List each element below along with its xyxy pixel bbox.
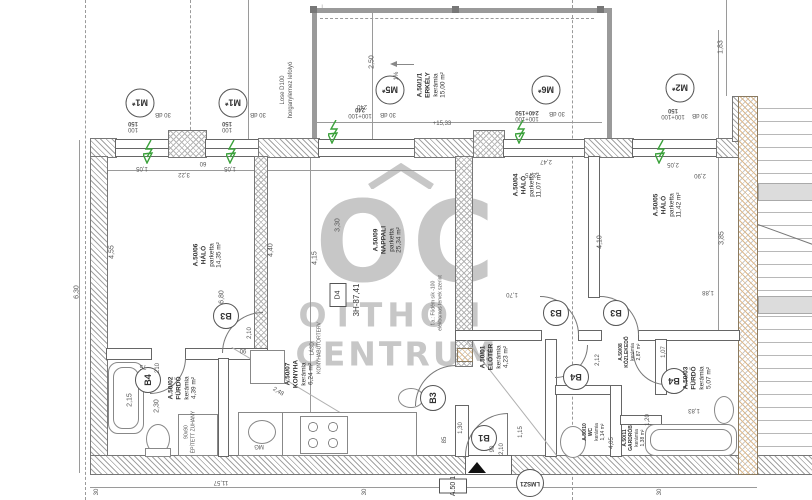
stair-strip [757, 96, 812, 455]
bathtub-2-inner [650, 429, 732, 451]
window-dims-m1-left: 100150 [128, 120, 138, 132]
wall-pillar [168, 130, 207, 158]
dim-label: 75 [140, 363, 147, 369]
wall-exterior-right [738, 96, 758, 475]
window-dims-m2: 100+100150 [661, 107, 685, 119]
dim-line [79, 140, 80, 473]
door-leaf [507, 413, 508, 455]
floor-plan-canvas: OC OTTHON CENTRUM ↓ [0, 0, 812, 500]
window-tag-m1-right: M1* [219, 89, 248, 118]
window-tag-m2: M2* [666, 74, 695, 103]
slope-label: 1% [394, 72, 400, 81]
door-tag-b3: B3 [543, 300, 569, 326]
dim-label: 1,20 [645, 414, 651, 426]
dim-label: 6,30 [74, 285, 81, 299]
tag-label: B1 [478, 433, 490, 443]
vent-arrow-icon [226, 140, 240, 164]
entrance-label-box: A.50 1 [439, 479, 467, 494]
room-area: 1,38 m² [640, 425, 646, 451]
room-id: A.50/01 [479, 344, 487, 370]
washer-label: MG [254, 443, 264, 449]
dim-label: 1,88 [702, 289, 714, 295]
room-id: A.50/09 [372, 226, 380, 254]
balcony-post [597, 6, 604, 13]
dim-label: 2,48 [271, 386, 284, 397]
room-finish: kerámia [432, 72, 440, 98]
room-name: NAPPALI [380, 226, 388, 254]
room-name: HÁLÓ [200, 242, 208, 268]
stair-step [758, 183, 812, 201]
wall-exterior [258, 138, 320, 158]
downpipe-note: Lose D100horganylemez lefolyó [280, 62, 296, 119]
dim-label: 150 [128, 120, 138, 126]
tag-label: B3 [610, 308, 622, 318]
dim-line [718, 30, 719, 330]
dim-line [106, 170, 455, 171]
dim-label: 2,10 [499, 443, 505, 455]
dim-label: 240+150 [515, 109, 539, 115]
dim-label: 90 [490, 446, 496, 453]
dim-label: 90 [240, 347, 247, 353]
room-id: A.50/02 [167, 376, 175, 399]
dim-label: 60 [200, 160, 207, 166]
wall-exterior-bottom [90, 455, 467, 475]
acoustic-label: 30 dB [380, 111, 396, 117]
balcony-post [452, 6, 459, 13]
note-line: horganylemez lefolyó [288, 62, 294, 119]
room-id: A.50/06 [192, 242, 200, 268]
note-line: elektromos tervek szerint [437, 275, 443, 331]
wall-interior [588, 156, 600, 298]
window-dims-m1-right: 100150 [222, 120, 232, 132]
door-tag-b4: B4 [563, 364, 589, 390]
room-finish: parketta [208, 242, 216, 268]
acoustic-label: 30 dB [549, 110, 565, 116]
wall-interior [578, 330, 602, 341]
wall-exterior [584, 138, 634, 158]
note-line: LÁSD: [310, 341, 316, 355]
dim-label: 2,75 [525, 171, 537, 177]
room-label-gardrob: A.50/11 GARDRÓB kerámia 1,38 m² [622, 425, 646, 451]
window-tag-m5: M5* [376, 76, 405, 105]
dim-label: 30 [657, 489, 663, 496]
wall-interior [455, 330, 542, 341]
room-name: KONYHA [292, 360, 300, 388]
tag-label: M2* [672, 83, 688, 93]
room-label-erkely: A.50/1/1 ERKÉLY kerámia 15,00 m² [416, 72, 447, 98]
room-finish: parketta [388, 226, 396, 254]
dim-label: 6,80 [219, 290, 226, 304]
dim-label: 4,40 [268, 243, 275, 257]
dim-label: 3,22 [178, 171, 190, 177]
room-area: 5,07 m² [706, 366, 714, 389]
bathtub-2 [645, 424, 737, 456]
dim-label: 4,55 [109, 245, 116, 259]
room-label-eloter: A.50/01 ELŐTÉR kerámia 4,23 m² [479, 344, 510, 370]
shower-label: 90x90ÉPÍTETT ZUHANY [184, 411, 197, 453]
wall-exterior [90, 138, 117, 158]
room-id: A.50/03 [682, 366, 690, 389]
room-finish: kerámia [183, 376, 191, 399]
tag-label: LMSZ1 [520, 480, 540, 486]
axis-line [85, 0, 86, 500]
room-area: 15,00 m² [440, 72, 448, 98]
room-label-halo1: A.50/06 HÁLÓ parketta 14,35 m² [192, 242, 223, 268]
balcony-post [310, 6, 317, 13]
dim-label: 4,15 [312, 251, 319, 265]
tag-label: B4 [668, 376, 680, 386]
room-name: HÁLÓ [660, 192, 668, 217]
dim-label: 1,83 [718, 40, 725, 54]
unit-type-box: D4 [330, 283, 347, 307]
axis-line [190, 0, 191, 140]
tag-label: M5* [382, 85, 398, 95]
tag-label: B4 [570, 372, 582, 382]
room-finish: parketta [668, 192, 676, 217]
tag-label: M6* [538, 85, 554, 95]
dim-label: 3,85 [719, 231, 726, 245]
insulation-marker [457, 348, 473, 362]
slope-arrow-head [390, 61, 397, 67]
door-tag-b3: B3 [420, 385, 446, 411]
dim-label: 1,05 [224, 165, 236, 171]
dim-label: 1,70 [506, 291, 518, 297]
dim-label: 1,07 [661, 346, 667, 358]
tag-label: B3 [550, 308, 562, 318]
dim-label: 11,57 [214, 479, 229, 485]
room-label-wc: A.50/10 WC kerámia 1,14 m² [582, 423, 606, 441]
slope-arrow-line [396, 64, 414, 65]
washbasin [714, 396, 734, 424]
dim-label: 2,12 [595, 354, 601, 366]
note-line: KONYHABÚTORTERV [316, 322, 322, 374]
vent-arrow-icon [515, 120, 529, 144]
acoustic-label: 30 dB [250, 111, 266, 117]
room-id: A.50/04 [512, 172, 520, 197]
room-name: ERKÉLY [424, 72, 432, 98]
room-label-nappali: A.50/09 NAPPALI parketta 25,34 m² [372, 226, 403, 254]
note-line: Lose D100 [280, 75, 286, 104]
balcony-outline [312, 8, 612, 148]
dim-label: 1,05 [136, 165, 148, 171]
dim-label: 85 [442, 437, 448, 444]
room-id: A.50/1/1 [416, 72, 424, 98]
unit-type-label: D4 [335, 291, 342, 300]
dim-label: 30 [94, 489, 100, 496]
kitchen-note: LÁSD:KONYHABÚTORTERV [310, 322, 323, 374]
dim-label: 240 [357, 103, 367, 109]
dim-label: 2,15 [127, 393, 134, 407]
unit-code-label: 3H-87,41 [353, 284, 361, 317]
room-area: 25,34 m² [396, 226, 404, 254]
room-name: FÜRDŐ [690, 366, 698, 389]
wall-interior [106, 348, 152, 360]
room-id: A.50/07 [284, 360, 292, 388]
vent-arrow-icon [655, 140, 669, 164]
wall-interior [638, 330, 740, 341]
door-tag-b3: B3 [213, 303, 239, 329]
room-label-furdo1: A.50/02 FÜRDŐ kerámia 4,39 m² [167, 376, 198, 399]
dim-label: 100 [222, 126, 232, 132]
dim-label: 150 [668, 107, 678, 113]
tag-label: M1* [132, 98, 148, 108]
room-name: FÜRDŐ [175, 376, 183, 399]
room-label-halo3: A.50/05 HÁLÓ parketta 11,42 m² [652, 192, 683, 217]
wall-exterior-bottom [510, 455, 812, 475]
tag-label: B3 [220, 311, 232, 321]
toilet-tank [145, 448, 171, 457]
stove [300, 416, 348, 454]
tag-label: B3 [428, 392, 438, 404]
room-finish: kerámia [698, 366, 706, 389]
dim-label: 2,47 [540, 158, 552, 164]
room-area: 1,14 m² [600, 423, 606, 441]
dim-label: 1,30 [458, 422, 464, 434]
room-area: 4,23 m² [503, 344, 511, 370]
room-name: ELŐTÉR [487, 344, 495, 370]
wall-pillar [473, 130, 505, 158]
acoustic-label: 30 dB [692, 112, 708, 118]
dim-label: 1,15 [518, 426, 524, 438]
dim-label: 1,83 [688, 407, 700, 413]
room-label-kozlekedo: A.50/08 KÖZLEKEDŐ kerámia 2,87 m² [618, 336, 642, 367]
window-m2 [632, 139, 718, 157]
cabinet [250, 350, 285, 384]
room-area: 11,07 m² [536, 172, 544, 197]
room-finish: kerámia [300, 360, 308, 388]
door-tag-b3: B3 [603, 300, 629, 326]
entrance-label: A.50 1 [450, 476, 457, 496]
dim-label: 100 [128, 126, 138, 132]
dim-label: 100+100 [661, 113, 685, 119]
vent-arrow-icon [143, 140, 157, 164]
room-area: 2,87 m² [636, 336, 642, 367]
dim-label: 30 [362, 489, 368, 496]
level-marker: +15,33 [433, 121, 452, 127]
room-area: 14,35 m² [216, 242, 224, 268]
window-tag-m6: M6* [532, 76, 561, 105]
dim-label: 2,90 [694, 172, 706, 178]
extension-line [248, 0, 249, 140]
entrance-marker [468, 462, 486, 473]
extension-line [726, 0, 727, 96]
dim-label: 2,50 [369, 55, 376, 69]
dim-line [310, 156, 311, 455]
room-label-furdo2: A.50/03 FÜRDŐ kerámia 5,07 m² [682, 366, 713, 389]
dim-label: 4,10 [597, 235, 604, 249]
wall-exterior-left [90, 156, 108, 475]
tag-label: M1* [225, 98, 241, 108]
window-tag-m1-left: M1* [126, 89, 155, 118]
dim-label: 2,10 [247, 327, 253, 339]
note-line: 90x90 [184, 425, 190, 439]
room-area: 4,39 m² [191, 376, 199, 399]
note-line: ÉPÍTETT ZUHANY [190, 411, 196, 453]
dim-label: 3,30 [335, 218, 342, 232]
dim-label: 100+100 [348, 112, 372, 118]
shaft-tag-lmsz1: LMSZ1 [516, 469, 544, 497]
balcony-inner-line [320, 18, 594, 19]
dim-label: 210 [155, 363, 161, 373]
wall-interior [218, 358, 229, 457]
tag-label: B4 [143, 374, 153, 386]
vent-arrow-icon [328, 120, 342, 144]
dim-label: 2,30 [154, 399, 161, 413]
dim-label: 4,05 [609, 437, 615, 449]
room-finish: kerámia [495, 344, 503, 370]
room-id: A.50/05 [652, 192, 660, 217]
kitchen-sink [248, 420, 276, 444]
dim-label: 150 [222, 120, 232, 126]
wall-exterior [414, 138, 475, 158]
room-area: 11,42 m² [676, 192, 684, 217]
stair-step [758, 296, 812, 314]
acoustic-label: 30 dB [155, 111, 171, 117]
note-line: f.a.: Födém sík -100 [431, 281, 437, 325]
floor-note: f.a.: Födém sík -100elektromos tervek sz… [431, 275, 444, 331]
